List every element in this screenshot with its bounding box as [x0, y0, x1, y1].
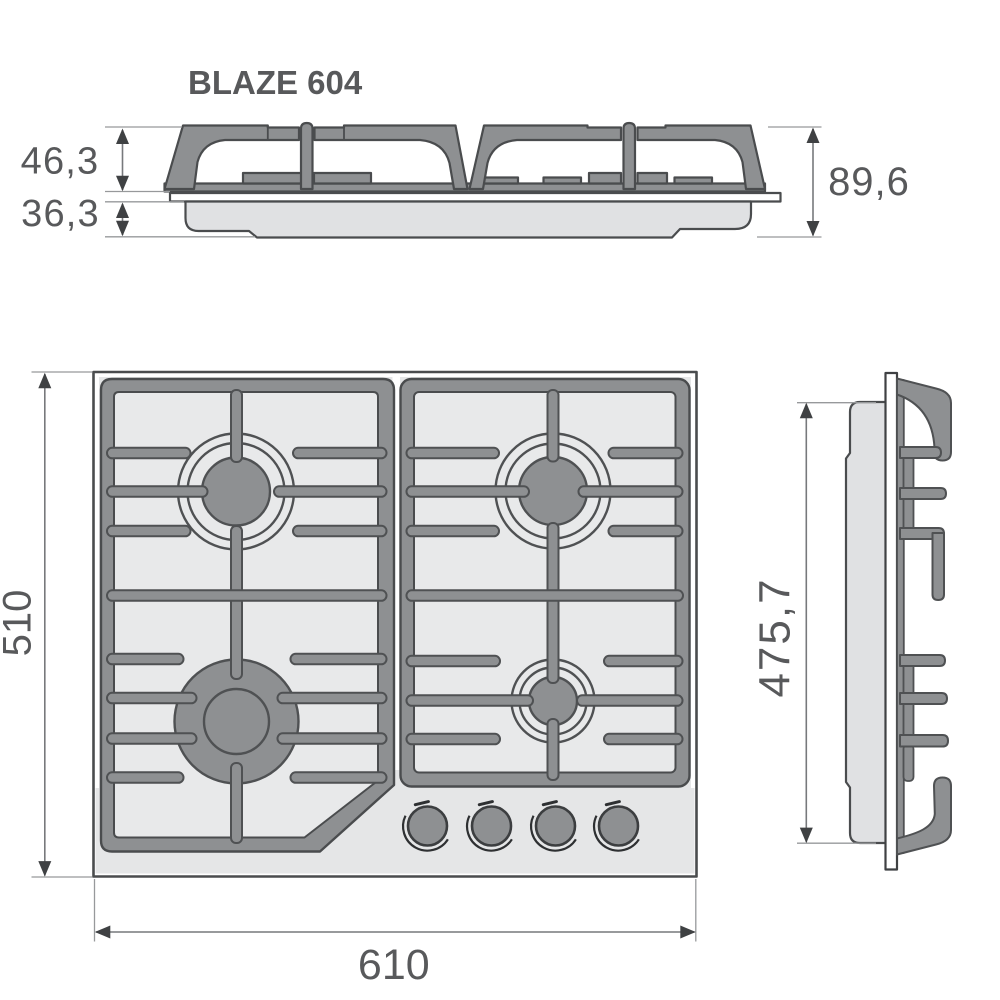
svg-text:610: 610 [358, 941, 430, 989]
svg-text:36,3: 36,3 [21, 193, 100, 235]
svg-text:BLAZE 604: BLAZE 604 [188, 64, 363, 101]
svg-text:510: 510 [0, 590, 40, 657]
svg-text:89,6: 89,6 [828, 160, 910, 204]
svg-text:475,7: 475,7 [751, 577, 800, 697]
svg-text:46,3: 46,3 [21, 141, 100, 183]
